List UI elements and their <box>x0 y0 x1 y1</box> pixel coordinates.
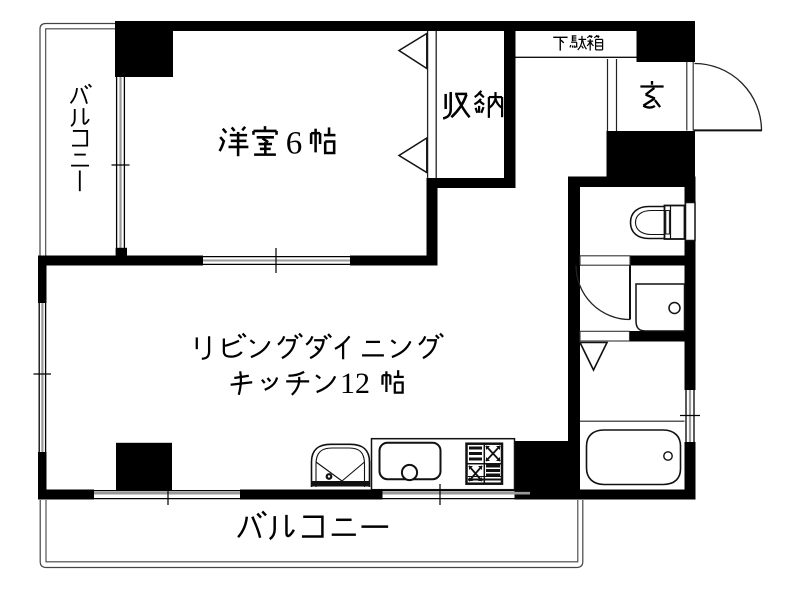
svg-text:6: 6 <box>286 126 303 162</box>
svg-text:12: 12 <box>340 367 370 400</box>
